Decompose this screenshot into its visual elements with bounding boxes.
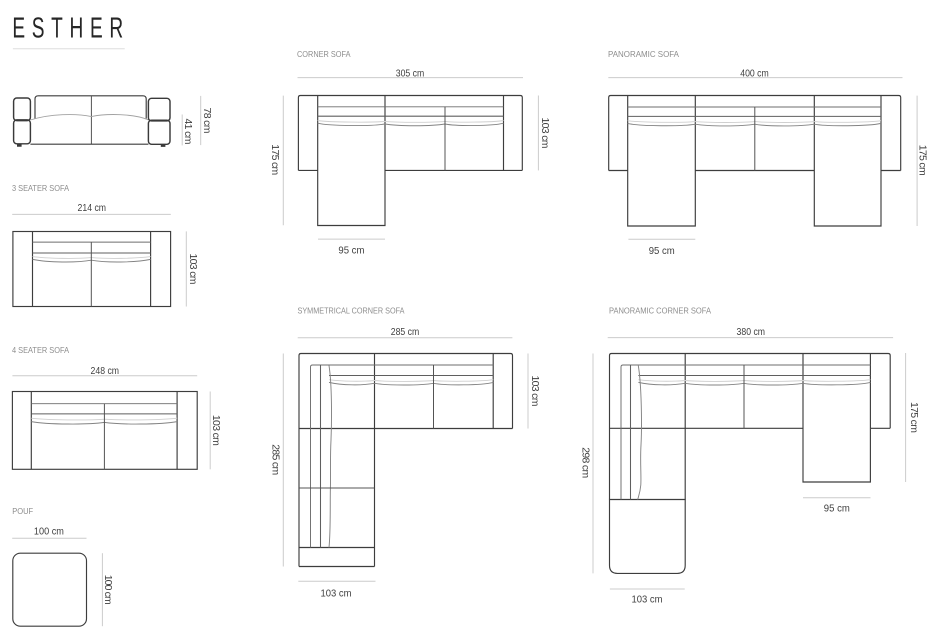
svg-text:100 cm: 100 cm xyxy=(34,525,64,537)
svg-text:95 cm: 95 cm xyxy=(338,245,364,257)
svg-text:248 cm: 248 cm xyxy=(91,365,120,377)
svg-text:103 cm: 103 cm xyxy=(321,587,352,599)
svg-text:175 cm: 175 cm xyxy=(917,145,929,176)
svg-text:3 SEATER SOFA: 3 SEATER SOFA xyxy=(12,183,69,193)
svg-text:175 cm: 175 cm xyxy=(269,144,281,175)
svg-text:95 cm: 95 cm xyxy=(649,245,675,257)
svg-text:175 cm: 175 cm xyxy=(908,402,920,433)
svg-text:POUF: POUF xyxy=(12,506,33,516)
svg-text:SYMMETRICAL CORNER SOFA: SYMMETRICAL CORNER SOFA xyxy=(298,306,405,316)
svg-text:103 cm: 103 cm xyxy=(632,593,663,605)
svg-text:CORNER SOFA: CORNER SOFA xyxy=(297,49,351,59)
svg-text:4 SEATER SOFA: 4 SEATER SOFA xyxy=(12,345,69,355)
svg-text:103 cm: 103 cm xyxy=(187,254,199,285)
svg-text:298 cm: 298 cm xyxy=(579,447,591,478)
svg-text:100 cm: 100 cm xyxy=(102,575,114,605)
svg-text:285 cm: 285 cm xyxy=(270,444,282,475)
svg-text:103 cm: 103 cm xyxy=(529,376,541,407)
svg-text:103 cm: 103 cm xyxy=(210,415,222,446)
svg-text:214 cm: 214 cm xyxy=(78,202,107,214)
svg-text:ESTHER: ESTHER xyxy=(12,13,123,45)
svg-text:103 cm: 103 cm xyxy=(539,118,551,149)
svg-text:285 cm: 285 cm xyxy=(391,326,420,338)
svg-text:PANORAMIC SOFA: PANORAMIC SOFA xyxy=(608,49,679,59)
svg-text:95 cm: 95 cm xyxy=(824,503,850,515)
svg-text:380 cm: 380 cm xyxy=(737,326,766,338)
svg-text:PANORAMIC CORNER SOFA: PANORAMIC CORNER SOFA xyxy=(609,306,711,316)
svg-text:78 cm: 78 cm xyxy=(201,108,213,134)
svg-text:41 cm: 41 cm xyxy=(182,119,194,145)
